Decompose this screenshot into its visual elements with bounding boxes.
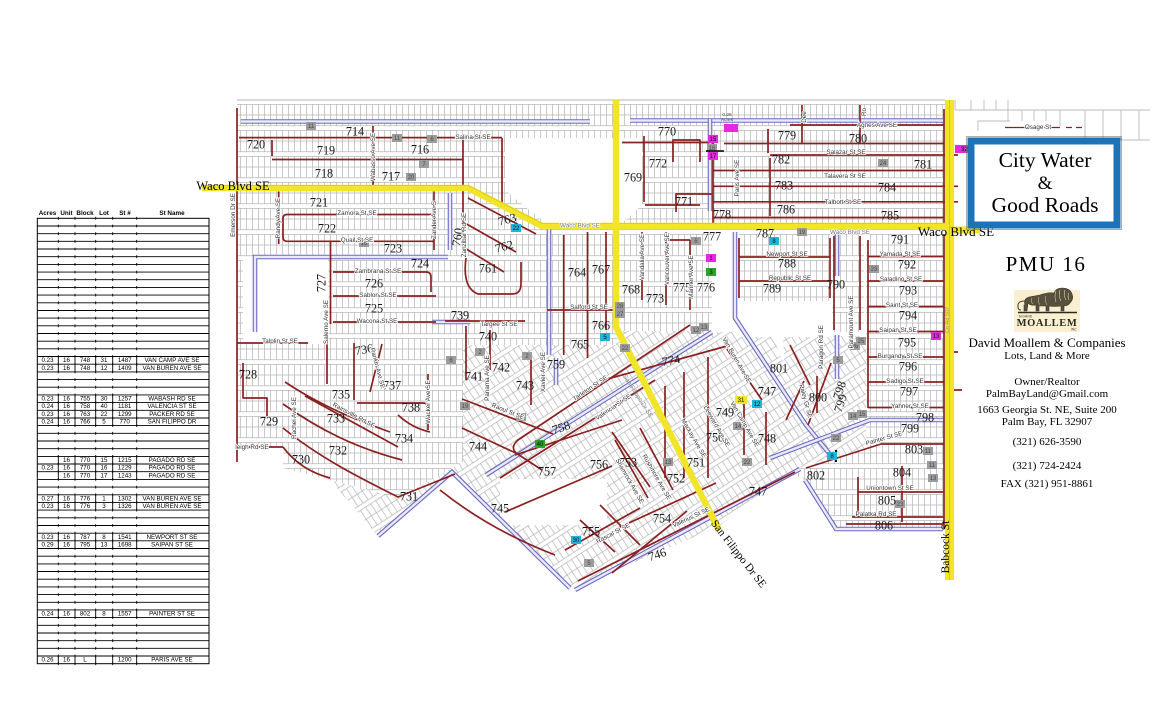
svg-text:763: 763 bbox=[80, 411, 91, 418]
svg-text:Salazar St SE: Salazar St SE bbox=[826, 149, 865, 156]
svg-text:0.23: 0.23 bbox=[41, 411, 54, 418]
svg-text:(321) 724-2424: (321) 724-2424 bbox=[1013, 460, 1082, 472]
svg-text:771: 771 bbox=[675, 195, 693, 209]
svg-text:793: 793 bbox=[899, 284, 917, 298]
svg-text:16: 16 bbox=[63, 457, 70, 464]
svg-text:13: 13 bbox=[933, 334, 940, 340]
svg-text:727: 727 bbox=[315, 274, 329, 292]
svg-text:WABASH RD SE: WABASH RD SE bbox=[148, 396, 195, 403]
svg-text:0.23: 0.23 bbox=[41, 503, 54, 510]
svg-text:765: 765 bbox=[571, 338, 589, 352]
svg-text:1557: 1557 bbox=[118, 611, 132, 618]
svg-text:16: 16 bbox=[63, 403, 70, 410]
svg-text:803: 803 bbox=[905, 443, 923, 457]
svg-text:748: 748 bbox=[80, 357, 91, 364]
svg-text:11: 11 bbox=[929, 463, 936, 469]
svg-text:St #: St # bbox=[119, 210, 131, 217]
svg-text:Sadigo St SE: Sadigo St SE bbox=[886, 378, 923, 385]
svg-text:748: 748 bbox=[758, 432, 776, 446]
svg-text:Owner/Realtor: Owner/Realtor bbox=[1014, 376, 1080, 388]
svg-text:Yahner St SE: Yahner St SE bbox=[891, 403, 929, 410]
svg-text:794: 794 bbox=[899, 309, 917, 323]
svg-text:787: 787 bbox=[80, 534, 91, 541]
svg-text:770: 770 bbox=[658, 125, 676, 139]
svg-text:Babcock St: Babcock St bbox=[940, 520, 952, 574]
svg-text:734: 734 bbox=[395, 432, 413, 446]
svg-text:1698: 1698 bbox=[118, 541, 132, 548]
svg-text:778: 778 bbox=[713, 208, 731, 222]
svg-text:19: 19 bbox=[462, 404, 469, 410]
svg-text:772: 772 bbox=[649, 157, 667, 171]
svg-text:Targee St SE: Targee St SE bbox=[480, 321, 517, 328]
svg-text:5: 5 bbox=[102, 419, 106, 426]
svg-text:19: 19 bbox=[799, 230, 806, 236]
svg-text:786: 786 bbox=[777, 203, 795, 217]
svg-text:770: 770 bbox=[120, 419, 131, 426]
svg-text:0.23: 0.23 bbox=[41, 396, 54, 403]
svg-text:724: 724 bbox=[411, 257, 429, 271]
svg-text:31: 31 bbox=[101, 357, 108, 364]
svg-text:780: 780 bbox=[849, 132, 867, 146]
svg-text:FAX (321) 951-8861: FAX (321) 951-8861 bbox=[1001, 478, 1094, 490]
svg-text:776: 776 bbox=[80, 503, 91, 510]
svg-text:0.29: 0.29 bbox=[41, 541, 54, 548]
svg-text:11: 11 bbox=[394, 136, 401, 142]
svg-text:732: 732 bbox=[329, 444, 347, 458]
svg-text:805: 805 bbox=[878, 494, 896, 508]
svg-text:14: 14 bbox=[850, 414, 857, 420]
svg-text:Xavier Ave SE: Xavier Ave SE bbox=[540, 352, 547, 392]
svg-text:791: 791 bbox=[891, 233, 909, 247]
svg-text:23: 23 bbox=[897, 502, 904, 508]
svg-text:1243: 1243 bbox=[118, 472, 132, 479]
svg-text:1663 Georgia St. NE, Suite 200: 1663 Georgia St. NE, Suite 200 bbox=[977, 404, 1117, 416]
svg-text:Zander Ave S: Zander Ave S bbox=[431, 201, 438, 239]
svg-text:770: 770 bbox=[80, 472, 91, 479]
svg-text:787: 787 bbox=[756, 227, 774, 241]
svg-text:757: 757 bbox=[538, 465, 556, 479]
svg-text:16: 16 bbox=[101, 465, 108, 472]
svg-text:776: 776 bbox=[697, 281, 715, 295]
svg-text:PACKER RD SE: PACKER RD SE bbox=[149, 411, 195, 418]
svg-text:22: 22 bbox=[744, 460, 751, 466]
svg-text:804: 804 bbox=[893, 466, 911, 480]
svg-text:755: 755 bbox=[80, 396, 91, 403]
svg-text:Yamada St SE: Yamada St SE bbox=[880, 251, 921, 258]
svg-text:739: 739 bbox=[451, 309, 469, 323]
svg-text:Agnes Ave SE: Agnes Ave SE bbox=[857, 122, 897, 129]
svg-text:Acres: Acres bbox=[721, 117, 734, 123]
svg-text:768: 768 bbox=[622, 283, 640, 297]
svg-text:22: 22 bbox=[101, 411, 108, 418]
svg-text:1257: 1257 bbox=[118, 396, 132, 403]
svg-text:Saint St SE: Saint St SE bbox=[886, 302, 918, 309]
svg-text:720: 720 bbox=[247, 138, 265, 152]
svg-text:761: 761 bbox=[479, 262, 497, 276]
svg-text:754: 754 bbox=[653, 512, 671, 526]
svg-text:1229: 1229 bbox=[118, 465, 132, 472]
svg-text:728: 728 bbox=[239, 368, 257, 382]
svg-text:740: 740 bbox=[479, 330, 497, 344]
svg-text:797: 797 bbox=[900, 385, 918, 399]
svg-text:30: 30 bbox=[101, 396, 108, 403]
svg-text:16: 16 bbox=[63, 495, 70, 502]
svg-text:Salerno Ave SE: Salerno Ave SE bbox=[323, 300, 330, 344]
svg-text:0.23: 0.23 bbox=[41, 365, 54, 372]
svg-text:1541: 1541 bbox=[118, 534, 132, 541]
svg-text:Zambrana St SE: Zambrana St SE bbox=[355, 268, 402, 275]
svg-text:16: 16 bbox=[63, 472, 70, 479]
svg-text:0.26: 0.26 bbox=[41, 657, 54, 664]
svg-text:L: L bbox=[83, 657, 87, 664]
svg-text:Dee: Dee bbox=[801, 111, 808, 123]
svg-text:1326: 1326 bbox=[118, 503, 132, 510]
svg-text:17: 17 bbox=[101, 472, 108, 479]
svg-text:716: 716 bbox=[411, 143, 429, 157]
svg-text:28: 28 bbox=[617, 304, 624, 310]
svg-text:Salina St SE: Salina St SE bbox=[455, 134, 490, 141]
svg-text:(321) 626-3590: (321) 626-3590 bbox=[1013, 436, 1082, 448]
svg-text:755: 755 bbox=[582, 525, 600, 539]
svg-text:Co Rd 507: Co Rd 507 bbox=[945, 307, 951, 333]
svg-text:0.24: 0.24 bbox=[41, 403, 54, 410]
svg-text:738: 738 bbox=[402, 401, 420, 415]
svg-text:SAIPAN ST SE: SAIPAN ST SE bbox=[151, 541, 193, 548]
svg-text:13: 13 bbox=[701, 325, 708, 331]
svg-text:Salford St SE: Salford St SE bbox=[570, 304, 608, 311]
svg-text:Zanzibar Rd SE: Zanzibar Rd SE bbox=[461, 213, 468, 257]
svg-text:789: 789 bbox=[763, 282, 781, 296]
svg-text:Uniontown St SE: Uniontown St SE bbox=[866, 485, 914, 492]
svg-text:745: 745 bbox=[491, 502, 509, 516]
svg-text:Saladino St SE: Saladino St SE bbox=[880, 276, 922, 283]
svg-text:Palatka Rd SE: Palatka Rd SE bbox=[856, 511, 897, 518]
svg-text:12: 12 bbox=[754, 402, 761, 408]
svg-text:VALENCIA ST SE: VALENCIA ST SE bbox=[147, 403, 196, 410]
svg-text:Sablon St SE: Sablon St SE bbox=[359, 292, 396, 299]
svg-text:714: 714 bbox=[346, 125, 364, 139]
svg-text:16: 16 bbox=[63, 503, 70, 510]
svg-text:800: 800 bbox=[809, 391, 827, 405]
svg-text:27: 27 bbox=[617, 312, 624, 318]
svg-text:leigh Rd SE: leigh Rd SE bbox=[235, 444, 268, 451]
svg-text:25: 25 bbox=[858, 339, 865, 345]
svg-text:11: 11 bbox=[308, 124, 315, 130]
svg-text:781: 781 bbox=[914, 158, 932, 172]
svg-text:Rachel Ave SE: Rachel Ave SE bbox=[291, 397, 298, 439]
svg-text:17: 17 bbox=[710, 154, 717, 160]
svg-text:15: 15 bbox=[101, 457, 108, 464]
svg-text:758: 758 bbox=[80, 403, 91, 410]
svg-text:PAGADO RD SE: PAGADO RD SE bbox=[149, 457, 196, 464]
svg-text:735: 735 bbox=[332, 388, 350, 402]
svg-text:30: 30 bbox=[573, 538, 580, 544]
svg-text:VAN CAMP AVE SE: VAN CAMP AVE SE bbox=[144, 357, 199, 364]
svg-text:806: 806 bbox=[875, 519, 893, 533]
svg-text:718: 718 bbox=[315, 167, 333, 181]
svg-text:759: 759 bbox=[547, 358, 565, 372]
svg-text:16: 16 bbox=[63, 396, 70, 403]
svg-text:Vancouver Ave SE: Vancouver Ave SE bbox=[664, 233, 671, 285]
svg-text:1487: 1487 bbox=[118, 357, 132, 364]
svg-text:8: 8 bbox=[102, 534, 106, 541]
svg-text:PAINTER ST SE: PAINTER ST SE bbox=[149, 611, 195, 618]
svg-text:733: 733 bbox=[327, 412, 345, 426]
svg-text:Waco Blvd SE: Waco Blvd SE bbox=[560, 223, 600, 230]
svg-text:756: 756 bbox=[590, 458, 608, 472]
svg-text:PAGADO RD SE: PAGADO RD SE bbox=[149, 465, 196, 472]
svg-text:Ro: Ro bbox=[861, 107, 868, 116]
svg-text:1: 1 bbox=[102, 495, 106, 502]
svg-text:16: 16 bbox=[63, 365, 70, 372]
svg-text:777: 777 bbox=[703, 230, 721, 244]
svg-text:NEWPORT ST SE: NEWPORT ST SE bbox=[147, 534, 198, 541]
svg-text:11: 11 bbox=[925, 449, 932, 455]
svg-text:13: 13 bbox=[930, 476, 937, 482]
svg-text:764: 764 bbox=[568, 266, 586, 280]
svg-text:Newport St SE: Newport St SE bbox=[766, 251, 807, 258]
svg-text:Paris Ave SE: Paris Ave SE bbox=[734, 160, 741, 197]
svg-text:796: 796 bbox=[899, 360, 917, 374]
svg-text:779: 779 bbox=[778, 129, 796, 143]
svg-text:Paramount Ave SE: Paramount Ave SE bbox=[848, 295, 855, 348]
svg-text:730: 730 bbox=[292, 453, 310, 467]
svg-text:Burgandy St SE: Burgandy St SE bbox=[878, 353, 923, 360]
svg-text:Panama Ave SE: Panama Ave SE bbox=[484, 355, 491, 401]
svg-text:31: 31 bbox=[738, 398, 745, 404]
svg-text:Emerson Dr SE: Emerson Dr SE bbox=[230, 193, 237, 237]
svg-text:770: 770 bbox=[80, 465, 91, 472]
svg-text:Saipan St SE: Saipan St SE bbox=[879, 327, 916, 334]
svg-text:769: 769 bbox=[624, 171, 642, 185]
svg-text:Block: Block bbox=[76, 210, 94, 217]
svg-text:729: 729 bbox=[260, 415, 278, 429]
svg-text:Republic St SE: Republic St SE bbox=[769, 275, 811, 282]
svg-text:16: 16 bbox=[63, 357, 70, 364]
svg-text:22: 22 bbox=[513, 226, 520, 232]
svg-text:0.23: 0.23 bbox=[41, 357, 54, 364]
svg-text:0.24: 0.24 bbox=[41, 419, 54, 426]
svg-text:13: 13 bbox=[101, 541, 108, 548]
svg-text:16: 16 bbox=[63, 611, 70, 618]
svg-text:16: 16 bbox=[63, 465, 70, 472]
svg-text:748: 748 bbox=[80, 365, 91, 372]
svg-text:St Name: St Name bbox=[159, 210, 185, 217]
svg-text:15: 15 bbox=[859, 412, 866, 418]
svg-text:12: 12 bbox=[693, 328, 700, 334]
svg-text:VAN BUREN AVE SE: VAN BUREN AVE SE bbox=[143, 365, 202, 372]
svg-text:743: 743 bbox=[516, 379, 534, 393]
svg-text:&: & bbox=[1038, 173, 1053, 194]
svg-text:16: 16 bbox=[63, 411, 70, 418]
svg-text:San Filippo Dr SE: San Filippo Dr SE bbox=[708, 518, 768, 590]
svg-text:INC: INC bbox=[1071, 328, 1077, 332]
svg-text:16: 16 bbox=[63, 534, 70, 541]
svg-text:20: 20 bbox=[408, 175, 415, 181]
svg-text:747: 747 bbox=[758, 385, 776, 399]
svg-text:802: 802 bbox=[80, 611, 91, 618]
svg-text:Waco Blvd SE: Waco Blvd SE bbox=[196, 179, 270, 193]
svg-text:784: 784 bbox=[878, 181, 896, 195]
svg-text:731: 731 bbox=[400, 490, 418, 504]
svg-text:16: 16 bbox=[63, 419, 70, 426]
svg-text:722: 722 bbox=[318, 222, 336, 236]
svg-text:788: 788 bbox=[778, 257, 796, 271]
svg-text:Talplin St SE: Talplin St SE bbox=[262, 338, 298, 345]
svg-text:24: 24 bbox=[880, 161, 887, 167]
svg-text:785: 785 bbox=[881, 209, 899, 223]
svg-text:Wacker Ave SE: Wacker Ave SE bbox=[425, 380, 432, 423]
svg-text:Lots, Land & More: Lots, Land & More bbox=[1004, 350, 1090, 362]
svg-text:790: 790 bbox=[827, 278, 845, 292]
svg-text:795: 795 bbox=[80, 541, 91, 548]
svg-text:0.23: 0.23 bbox=[41, 534, 54, 541]
svg-text:Talbott St SE: Talbott St SE bbox=[825, 199, 861, 206]
svg-text:SAN FILIPPO DR: SAN FILIPPO DR bbox=[148, 419, 197, 426]
svg-text:1302: 1302 bbox=[118, 495, 132, 502]
svg-text:766: 766 bbox=[80, 419, 91, 426]
svg-text:767: 767 bbox=[592, 263, 610, 277]
svg-text:16: 16 bbox=[63, 541, 70, 548]
svg-text:Good Roads: Good Roads bbox=[992, 193, 1099, 217]
svg-text:717: 717 bbox=[382, 170, 400, 184]
svg-text:744: 744 bbox=[469, 440, 487, 454]
svg-text:PalmBayLand@Gmail.com: PalmBayLand@Gmail.com bbox=[986, 388, 1109, 400]
svg-text:1200: 1200 bbox=[118, 657, 132, 664]
svg-text:PMU 16: PMU 16 bbox=[1006, 252, 1087, 276]
svg-text:747: 747 bbox=[749, 485, 767, 499]
svg-text:792: 792 bbox=[898, 258, 916, 272]
svg-text:PARIS AVE SE: PARIS AVE SE bbox=[151, 657, 192, 664]
svg-text:MOALLEM: MOALLEM bbox=[1017, 318, 1078, 329]
svg-text:16: 16 bbox=[63, 657, 70, 664]
svg-text:PAGADO RD SE: PAGADO RD SE bbox=[149, 472, 196, 479]
svg-text:Mariner Ave SE: Mariner Ave SE bbox=[688, 255, 695, 299]
svg-text:Waco Blvd SE: Waco Blvd SE bbox=[830, 229, 870, 236]
svg-text:776: 776 bbox=[80, 495, 91, 502]
svg-text:Unit: Unit bbox=[60, 210, 73, 217]
svg-text:799: 799 bbox=[901, 422, 919, 436]
svg-text:40: 40 bbox=[101, 403, 108, 410]
svg-text:770: 770 bbox=[80, 457, 91, 464]
svg-text:Talavera St SE: Talavera St SE bbox=[824, 173, 866, 180]
svg-text:23: 23 bbox=[871, 267, 878, 273]
svg-text:801: 801 bbox=[770, 362, 788, 376]
svg-text:13: 13 bbox=[665, 460, 672, 466]
svg-text:1215: 1215 bbox=[118, 457, 132, 464]
svg-text:802: 802 bbox=[807, 469, 825, 483]
svg-text:Randy Ave SE: Randy Ave SE bbox=[275, 198, 282, 239]
svg-text:719: 719 bbox=[317, 144, 335, 158]
svg-text:723: 723 bbox=[384, 242, 402, 256]
svg-text:741: 741 bbox=[465, 370, 483, 384]
svg-text:15: 15 bbox=[710, 137, 717, 143]
svg-text:Wabasso Ave SE: Wabasso Ave SE bbox=[370, 133, 377, 181]
svg-text:742: 742 bbox=[492, 361, 510, 375]
svg-text:Palm Bay, FL 32907: Palm Bay, FL 32907 bbox=[1002, 416, 1093, 428]
svg-text:VAN BUREN AVE SE: VAN BUREN AVE SE bbox=[143, 495, 202, 502]
svg-text:Acres: Acres bbox=[39, 210, 57, 217]
svg-text:Quail St SE: Quail St SE bbox=[341, 237, 374, 244]
svg-text:1299: 1299 bbox=[118, 411, 132, 418]
svg-text:Wacona St SE: Wacona St SE bbox=[357, 318, 398, 325]
svg-text:752: 752 bbox=[667, 472, 685, 486]
svg-text:1409: 1409 bbox=[118, 365, 132, 372]
svg-text:725: 725 bbox=[365, 302, 383, 316]
svg-text:40: 40 bbox=[537, 442, 544, 448]
svg-text:0.27: 0.27 bbox=[41, 495, 54, 502]
svg-text:0.24: 0.24 bbox=[41, 611, 54, 618]
svg-text:Paragon Rd SE: Paragon Rd SE bbox=[818, 325, 825, 369]
svg-text:783: 783 bbox=[775, 179, 793, 193]
svg-text:0.23: 0.23 bbox=[41, 465, 54, 472]
svg-text:766: 766 bbox=[592, 319, 610, 333]
svg-text:1181: 1181 bbox=[118, 403, 132, 410]
svg-text:22: 22 bbox=[622, 346, 629, 352]
svg-text:David Moallem & Companies: David Moallem & Companies bbox=[968, 335, 1125, 350]
svg-text:782: 782 bbox=[772, 153, 790, 167]
svg-text:3: 3 bbox=[102, 503, 106, 510]
svg-text:City Water: City Water bbox=[999, 148, 1092, 172]
svg-text:Osage St: Osage St bbox=[1025, 124, 1052, 131]
svg-text:721: 721 bbox=[310, 196, 328, 210]
svg-text:Lot: Lot bbox=[99, 210, 110, 217]
svg-text:VAN BUREN AVE SE: VAN BUREN AVE SE bbox=[143, 503, 202, 510]
svg-text:22: 22 bbox=[833, 436, 840, 442]
svg-text:Zamora St SE: Zamora St SE bbox=[337, 210, 377, 217]
svg-text:795: 795 bbox=[898, 336, 916, 350]
svg-text:773: 773 bbox=[646, 292, 664, 306]
svg-text:12: 12 bbox=[101, 365, 108, 372]
svg-text:Vandalia Ave SE: Vandalia Ave SE bbox=[639, 234, 646, 280]
svg-text:8: 8 bbox=[102, 611, 106, 618]
svg-text:726: 726 bbox=[365, 277, 383, 291]
